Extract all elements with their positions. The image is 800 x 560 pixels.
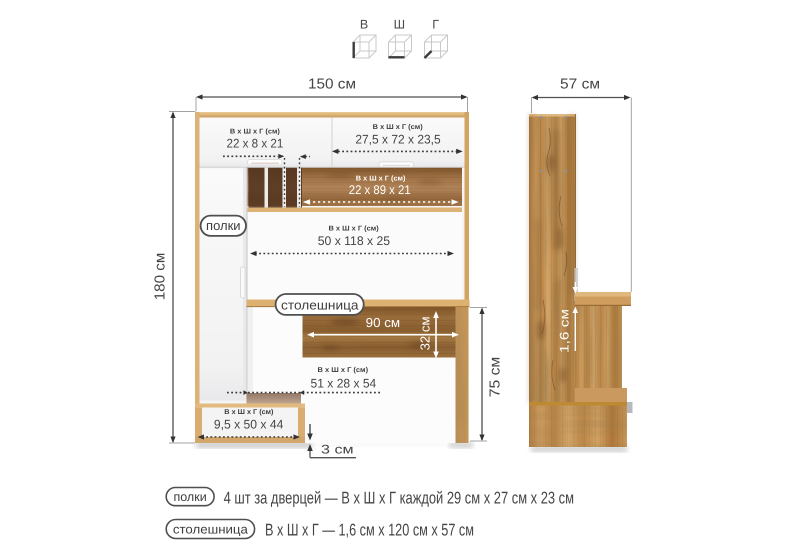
svg-text:В х Ш х Г (см): В х Ш х Г (см) [373, 123, 423, 131]
svg-text:1,6 см: 1,6 см [558, 309, 572, 353]
svg-text:51 x 28 x 54: 51 x 28 x 54 [311, 376, 377, 390]
svg-text:В: В [360, 17, 368, 31]
svg-text:В х Ш х Г (см): В х Ш х Г (см) [318, 366, 369, 374]
svg-text:В х Ш х Г (см): В х Ш х Г (см) [230, 128, 280, 136]
svg-text:В х Ш х Г (см): В х Ш х Г (см) [356, 174, 406, 182]
svg-text:57 см: 57 см [560, 77, 600, 93]
svg-text:Ш: Ш [394, 17, 405, 31]
svg-text:90 см: 90 см [366, 315, 401, 330]
svg-text:полки: полки [173, 490, 206, 504]
svg-text:27,5 x 72 x 23,5: 27,5 x 72 x 23,5 [355, 133, 440, 147]
svg-text:В х Ш х Г (см): В х Ш х Г (см) [224, 408, 273, 416]
svg-text:22 x 8 x 21: 22 x 8 x 21 [227, 137, 284, 151]
svg-text:9,5 x 50 x 44: 9,5 x 50 x 44 [214, 418, 284, 432]
svg-text:32 см: 32 см [418, 316, 433, 350]
svg-text:В х Ш х Г (см): В х Ш х Г (см) [329, 224, 379, 232]
svg-text:180 см: 180 см [153, 253, 169, 301]
svg-text:75 см: 75 см [488, 357, 504, 398]
svg-text:3 см: 3 см [321, 443, 354, 457]
svg-text:полки: полки [206, 218, 241, 233]
svg-text:Г: Г [432, 17, 439, 31]
svg-text:50 x 118 x 25: 50 x 118 x 25 [318, 234, 390, 248]
svg-text:150 см: 150 см [308, 77, 356, 93]
svg-text:4 шт за дверцей — В х Ш х Г ка: 4 шт за дверцей — В х Ш х Г каждой 29 см… [224, 488, 574, 507]
svg-text:столешница: столешница [173, 522, 248, 536]
svg-text:столешница: столешница [281, 297, 359, 312]
svg-text:22 x 89 x 21: 22 x 89 x 21 [349, 183, 411, 197]
svg-text:В х Ш х Г — 1,6 см х 120 см х: В х Ш х Г — 1,6 см х 120 см х 57 см [265, 521, 474, 540]
